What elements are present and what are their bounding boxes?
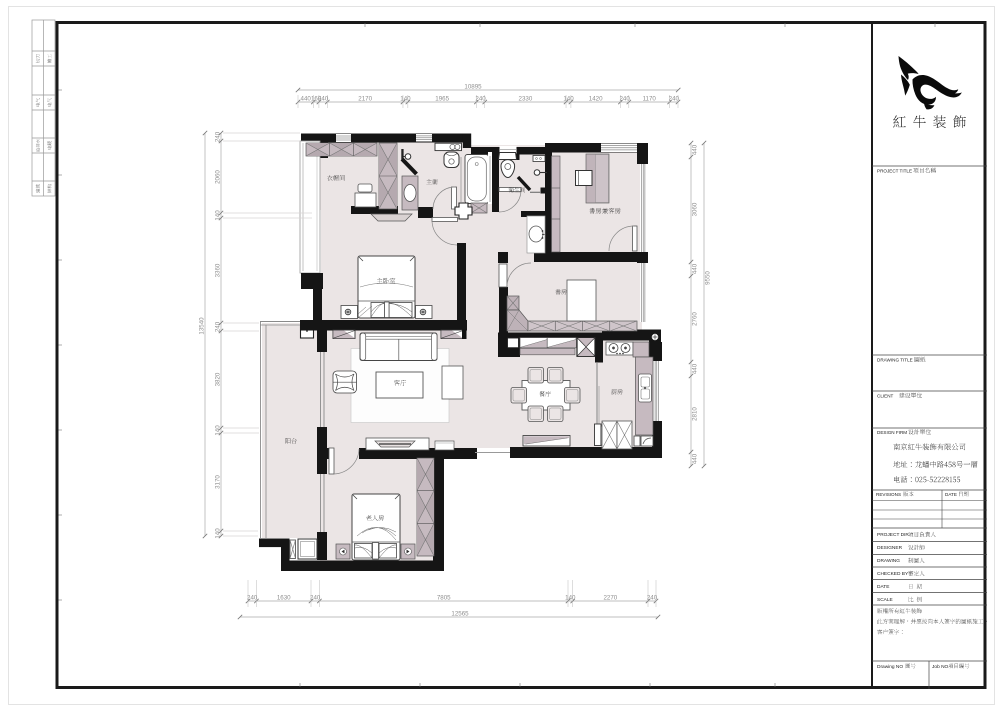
svg-text:2270: 2270 [603,595,617,602]
svg-text:CHECKED BY: CHECKED BY [877,571,909,577]
svg-text:3360: 3360 [215,263,222,277]
svg-text:SCALE: SCALE [877,597,893,603]
svg-text:440: 440 [692,263,699,274]
svg-text:240: 240 [310,595,321,602]
svg-text:3060: 3060 [692,202,699,216]
svg-text:440: 440 [692,453,699,464]
svg-text:10895: 10895 [464,84,482,91]
svg-text:140: 140 [563,96,574,103]
svg-text:2810: 2810 [692,407,699,421]
svg-text:240: 240 [669,96,680,103]
svg-text:Job NO: Job NO [932,664,949,670]
svg-text:DESIGNER: DESIGNER [877,545,903,551]
svg-text:140: 140 [400,96,411,103]
svg-text:240: 240 [619,96,630,103]
svg-text:2170: 2170 [358,96,372,103]
svg-text:DATE: DATE [945,492,957,497]
svg-text:240: 240 [475,96,486,103]
svg-text:1170: 1170 [643,96,657,103]
svg-text:DRAWING: DRAWING [877,558,900,564]
svg-text:140: 140 [215,210,222,221]
svg-text:240: 240 [318,96,329,103]
svg-text:1420: 1420 [589,96,603,103]
svg-text:440: 440 [301,96,312,103]
svg-text:1630: 1630 [277,595,291,602]
svg-text:240: 240 [647,595,658,602]
svg-text:240: 240 [247,595,258,602]
svg-text:2760: 2760 [692,312,699,326]
svg-text:3170: 3170 [215,475,222,489]
svg-text:140: 140 [215,425,222,436]
svg-text:1965: 1965 [435,96,449,103]
svg-text:7805: 7805 [437,595,451,602]
svg-text:DRAWING TITLE: DRAWING TITLE [877,358,913,363]
svg-text:CLIENT: CLIENT [877,394,894,399]
svg-text:12565: 12565 [451,611,469,618]
svg-text:2060: 2060 [215,170,222,184]
svg-text:440: 440 [692,363,699,374]
svg-text:DESIGN FIRM: DESIGN FIRM [877,430,907,435]
svg-text:13540: 13540 [199,317,206,335]
svg-text:9550: 9550 [705,271,712,285]
svg-text:3820: 3820 [215,372,222,386]
svg-text:PROJECT TITLE: PROJECT TITLE [877,169,912,174]
svg-text:440: 440 [692,144,699,155]
svg-text:Drawing NO: Drawing NO [877,664,903,670]
svg-text:140: 140 [565,595,576,602]
svg-text:140: 140 [215,528,222,539]
svg-text:2330: 2330 [519,96,533,103]
svg-text:PROJECT DIR.: PROJECT DIR. [877,532,910,538]
svg-text:DATE: DATE [877,584,889,590]
svg-text:REVISIONS: REVISIONS [876,492,901,497]
svg-text:240: 240 [215,131,222,142]
svg-text:240: 240 [215,321,222,332]
